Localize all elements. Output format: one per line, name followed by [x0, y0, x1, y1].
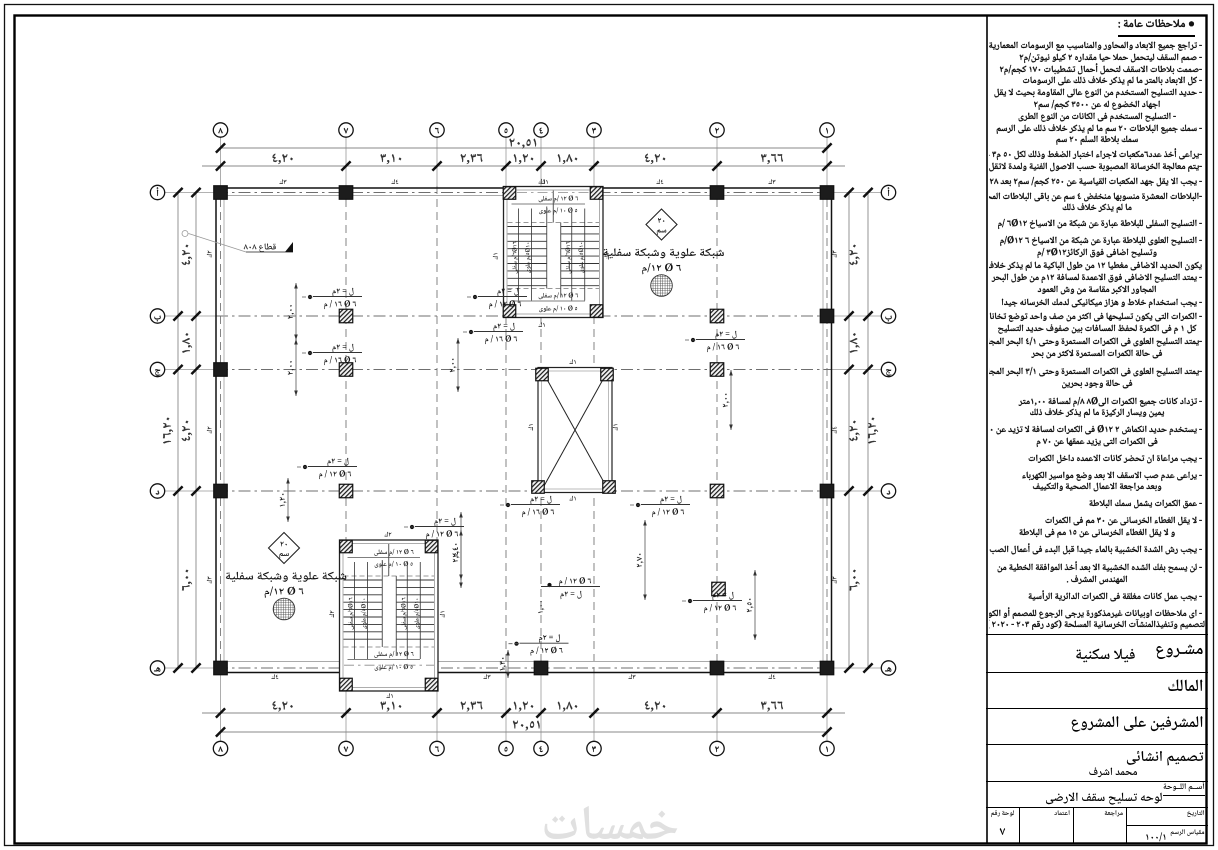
svg-text:١ك: ١ك	[527, 423, 538, 431]
svg-text:د: د	[886, 485, 890, 501]
svg-text:٤,٢٠: ٤,٢٠	[844, 243, 867, 266]
svg-text:١,٢٠: ١,٢٠	[512, 148, 535, 171]
svg-text:٦: ٦	[435, 743, 440, 759]
svg-text:٢ك: ٢ك	[328, 610, 339, 618]
svg-text:ل = ٢م: ل = ٢م	[530, 494, 552, 508]
svg-text:١,٨٠: ١,٨٠	[556, 148, 579, 171]
svg-text:٦Ø١٦/م سفلى: ٦Ø١٦/م سفلى	[346, 597, 357, 629]
svg-text:٢٠,٥١: ٢٠,٥١	[512, 715, 541, 738]
svg-text:٣,٦٦: ٣,٦٦	[760, 148, 783, 171]
svg-text:٢: ٢	[715, 743, 720, 759]
svg-text:٦ Ø ١٢ / م: ٦ Ø ١٢ / م	[704, 603, 737, 617]
svg-text:٣,١٠: ٣,١٠	[380, 148, 403, 171]
svg-text:٦ Ø ١٦ / م: ٦ Ø ١٦ / م	[324, 299, 357, 313]
svg-text:ل = ٢م: ل = ٢م	[327, 456, 349, 470]
svg-text:١,٨٠: ١,٨٠	[556, 696, 579, 719]
svg-text:٢ك: ٢ك	[206, 426, 217, 434]
svg-text:ب: ب	[154, 310, 162, 326]
svg-text:١٦,٢٠: ١٦,٢٠	[862, 416, 885, 445]
svg-text:١ك: ١ك	[541, 178, 549, 189]
svg-text:ل = ٢م: ل = ٢م	[712, 590, 734, 604]
svg-text:٦: ٦	[435, 124, 440, 140]
svg-text:٣ك: ٣ك	[483, 673, 491, 684]
svg-text:٢ك: ٢ك	[384, 531, 392, 542]
svg-text:٤: ٤	[539, 743, 544, 759]
svg-text:١ك: ١ك	[612, 423, 623, 431]
svg-text:٣ك: ٣ك	[831, 576, 842, 584]
svg-text:١ك: ١ك	[569, 495, 577, 506]
svg-text:٦ Ø ١٦ / م: ٦ Ø ١٦ / م	[324, 355, 357, 369]
svg-text:سم: سم	[656, 225, 667, 239]
svg-text:٤,٢٠: ٤,٢٠	[271, 696, 294, 719]
svg-text:٥Ø١٠/م علوى: ٥Ø١٠/م علوى	[359, 598, 370, 629]
svg-text:٤,٢٠: ٤,٢٠	[176, 243, 199, 266]
svg-text:هـ: هـ	[884, 662, 892, 678]
svg-text:٤: ٤	[539, 124, 544, 140]
svg-text:٨: ٨	[218, 124, 223, 140]
svg-text:٤ك: ٤ك	[391, 178, 399, 189]
svg-text:ل = ٢م: ل = ٢م	[493, 321, 515, 335]
svg-text:٢ك: ٢ك	[206, 250, 217, 258]
svg-text:ب: ب	[885, 310, 893, 326]
svg-text:٥: ٥	[504, 124, 509, 140]
svg-text:١,٠٠: ١,٠٠	[535, 600, 549, 614]
svg-text:١,٨٠: ١,٨٠	[176, 331, 199, 354]
svg-text:ل = ٢م: ل = ٢م	[660, 494, 682, 508]
svg-text:٣ك: ٣ك	[831, 250, 842, 258]
svg-text:٦ Ø ١٢ / م: ٦ Ø ١٢ / م	[426, 529, 459, 543]
svg-text:ج: ج	[154, 364, 160, 380]
svg-text:ل = ٢م: ل = ٢م	[332, 342, 354, 356]
svg-text:٢,٠٠: ٢,٠٠	[718, 392, 734, 407]
svg-text:٤ك: ٤ك	[271, 673, 279, 684]
svg-text:١ك: ١ك	[492, 252, 503, 260]
svg-text:١ك: ١ك	[386, 692, 394, 703]
svg-text:ج: ج	[885, 364, 891, 380]
svg-text:٦Ø١٦/م سفلى: ٦Ø١٦/م سفلى	[510, 241, 521, 273]
svg-text:٥: ٥	[504, 743, 509, 759]
svg-text:١,٣٠: ١,٣٠	[495, 656, 511, 671]
svg-text:٤ك: ٤ك	[656, 178, 664, 189]
svg-text:٦ Ø ١٦ / م: ٦ Ø ١٦ / م	[707, 342, 740, 356]
svg-text:٣ك: ٣ك	[206, 576, 217, 584]
svg-text:ل = ٢م: ل = ٢م	[332, 286, 354, 300]
svg-text:١,٨٠: ١,٨٠	[844, 331, 867, 354]
svg-text:٥Ø١٠/م علوى: ٥Ø١٠/م علوى	[576, 242, 587, 273]
svg-text:ل = ٢م: ل = ٢م	[539, 632, 561, 646]
svg-text:ل = ٢م: ل = ٢م	[715, 329, 737, 343]
svg-text:٦ Ø ١٦ / م: ٦ Ø ١٦ / م	[522, 507, 555, 521]
svg-text:٥Ø١٠/م علوى: ٥Ø١٠/م علوى	[523, 242, 534, 273]
svg-text:١,٢٠: ١,٢٠	[275, 492, 291, 507]
svg-text:٦ Ø ١٢ / م: ٦ Ø ١٢ / م	[319, 469, 352, 483]
svg-text:٦ Ø ١٢ / م: ٦ Ø ١٢ / م	[530, 645, 563, 659]
svg-text:ل = ٢م: ل = ٢م	[497, 286, 519, 300]
svg-text:٢,٠٠: ٢,٠٠	[445, 357, 461, 372]
svg-text:٦ Ø ١٢ / م: ٦ Ø ١٢ / م	[489, 299, 522, 313]
svg-text:٦Ø١٦/م سفلى: ٦Ø١٦/م سفلى	[398, 597, 409, 629]
svg-text:هـ: هـ	[153, 662, 161, 678]
svg-text:١ك: ١ك	[569, 358, 577, 369]
svg-text:١: ١	[825, 743, 830, 759]
svg-text:٦ Ø ١٦ / م: ٦ Ø ١٦ / م	[485, 334, 518, 348]
svg-text:ل = ٢م: ل = ٢م	[560, 589, 582, 603]
svg-text:٣ك: ٣ك	[279, 178, 287, 189]
svg-text:٤,٢٠: ٤,٢٠	[644, 696, 667, 719]
svg-text:٣,٦٦: ٣,٦٦	[760, 696, 783, 719]
svg-text:٢: ٢	[715, 124, 720, 140]
svg-text:قطاع ٨٠٨: قطاع ٨٠٨	[244, 240, 277, 256]
svg-text:٧: ٧	[344, 124, 349, 140]
svg-text:أ: أ	[156, 187, 159, 203]
svg-text:٥ Ø ١٠ /م علوى: ٥ Ø ١٠ /م علوى	[539, 305, 578, 316]
svg-text:٣: ٣	[592, 124, 597, 140]
svg-text:٢,٣٦: ٢,٣٦	[460, 696, 483, 719]
svg-text:د: د	[155, 485, 159, 501]
svg-text:٤ك: ٤ك	[831, 426, 842, 434]
svg-text:ل = ٢م: ل = ٢م	[434, 516, 456, 530]
svg-text:٦Ø١٦/م سفلى: ٦Ø١٦/م سفلى	[563, 241, 574, 273]
svg-text:٤,٢٠: ٤,٢٠	[176, 419, 199, 442]
svg-text:٣: ٣	[592, 743, 597, 759]
svg-text:١ك: ١ك	[538, 321, 546, 332]
svg-text:٦ Ø ١٢ / م: ٦ Ø ١٢ / م	[652, 507, 685, 521]
svg-text:٦ Ø ١٢ / م: ٦ Ø ١٢ / م	[559, 576, 592, 590]
svg-text:٢,٣٦: ٢,٣٦	[460, 148, 483, 171]
svg-text:أ: أ	[887, 187, 890, 203]
svg-text:٧: ٧	[344, 743, 349, 759]
svg-text:٢,٥٠: ٢,٥٠	[742, 597, 758, 612]
svg-text:٦,٠٠: ٦,٠٠	[844, 568, 867, 591]
svg-text:٢,٧٠: ٢,٧٠	[632, 552, 648, 567]
svg-text:٦,٠٠: ٦,٠٠	[176, 568, 199, 591]
svg-text:٥ Ø ١٠ /م علوى: ٥ Ø ١٠ /م علوى	[374, 663, 413, 674]
svg-text:٥Ø١٠/م علوى: ٥Ø١٠/م علوى	[411, 598, 422, 629]
svg-text:١: ١	[825, 124, 830, 140]
svg-text:سم: سم	[279, 548, 290, 562]
svg-text:٣ك: ٣ك	[628, 673, 636, 684]
svg-text:٢,٠٠: ٢,٠٠	[283, 360, 299, 375]
svg-text:٣ك: ٣ك	[768, 178, 776, 189]
svg-text:٤ك: ٤ك	[768, 673, 776, 684]
svg-text:٤,٢٠: ٤,٢٠	[271, 148, 294, 171]
svg-text:٢,٤٠: ٢,٤٠	[448, 547, 464, 562]
svg-text:٨: ٨	[218, 743, 223, 759]
svg-text:١ك: ١ك	[439, 610, 450, 618]
svg-text:٢,٠٠: ٢,٠٠	[283, 304, 299, 319]
svg-text:٤,٢٠: ٤,٢٠	[644, 148, 667, 171]
